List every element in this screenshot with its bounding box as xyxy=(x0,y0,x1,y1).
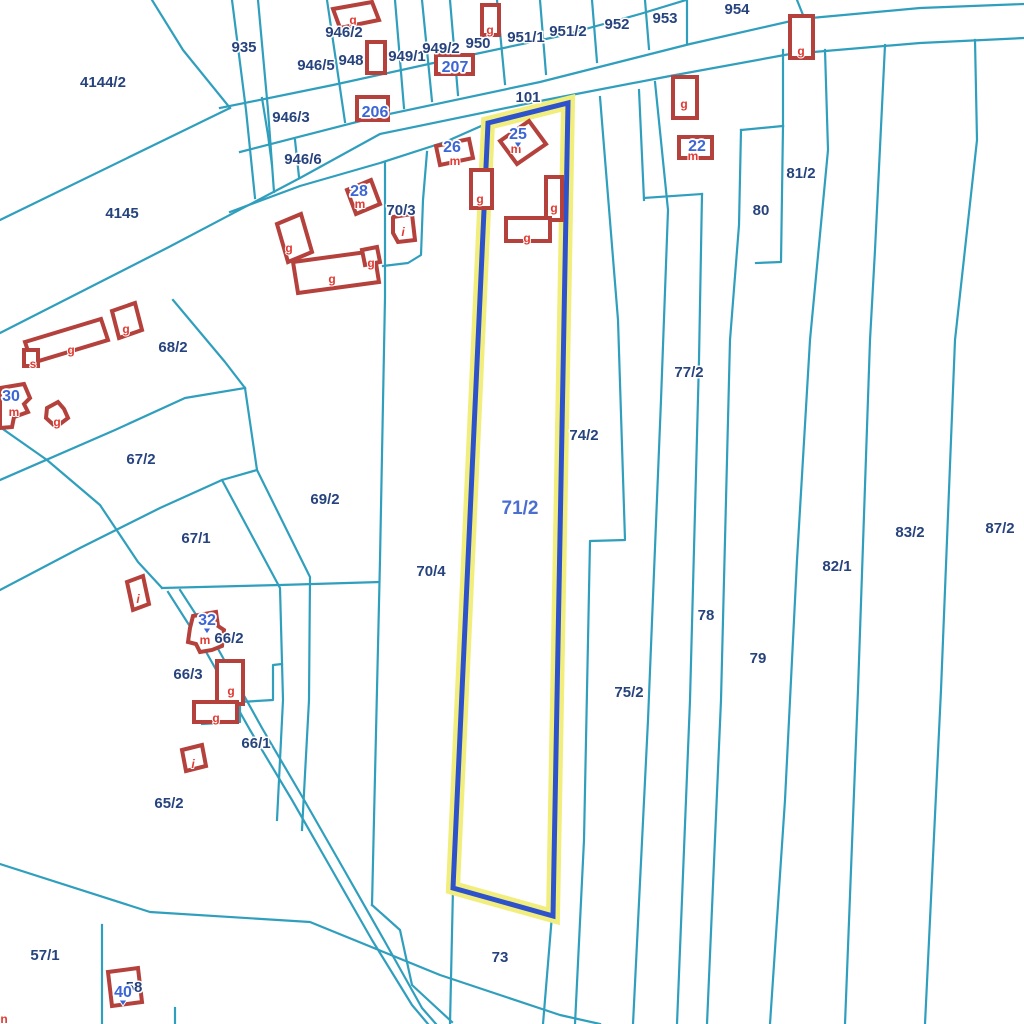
address-marker: 28 xyxy=(350,183,368,200)
building-letter: n xyxy=(0,1012,7,1024)
boundary-line xyxy=(741,126,783,130)
parcel-number-label: 948 xyxy=(338,52,363,69)
building-letter: s xyxy=(30,357,37,371)
parcel-number-label: 66/1 xyxy=(241,735,270,752)
parcel-number-label: 70/4 xyxy=(416,563,446,580)
building-letter: g xyxy=(67,343,74,357)
parcel-number-label: 935 xyxy=(231,39,256,56)
parcel-number-label: 946/5 xyxy=(297,57,335,74)
parcel-number-label: 954 xyxy=(724,1,750,18)
parcel-number-label: 70/3 xyxy=(386,202,415,219)
parcel-number-label: 946/6 xyxy=(284,151,322,168)
boundary-line xyxy=(644,194,702,198)
parcel-number-label: 4144/2 xyxy=(80,74,126,91)
cadastral-map-canvas[interactable]: ggggmmgggmiggggsgmgmmggiin 9354144/2946/… xyxy=(0,0,1024,1024)
address-marker: 206 xyxy=(362,104,389,121)
parcel-number-label: 950 xyxy=(465,35,490,52)
building-letter: g xyxy=(285,241,292,255)
building-letter: g xyxy=(367,256,374,270)
parcel-number-label: 75/2 xyxy=(614,684,643,701)
parcel-number-label: 83/2 xyxy=(895,524,924,541)
building-outline xyxy=(277,214,312,262)
boundary-line xyxy=(0,864,600,1024)
boundary-line xyxy=(0,108,230,220)
parcel-number-label: 65/2 xyxy=(154,795,183,812)
boundary-line xyxy=(575,97,625,1024)
address-marker: 22 xyxy=(688,138,706,155)
address-marker: 30 xyxy=(2,388,20,405)
boundary-line xyxy=(257,470,310,830)
building-letter: g xyxy=(550,201,557,215)
parcel-number-label: 57/1 xyxy=(30,947,59,964)
address-marker: 25 xyxy=(509,126,527,143)
boundary-line xyxy=(450,888,453,1024)
road-south-edge xyxy=(0,38,1024,333)
building-letter: g xyxy=(523,231,530,245)
parcel-number-label: 949/2 xyxy=(422,40,460,57)
building-letter: g xyxy=(328,272,335,286)
parcel-number-label: 67/1 xyxy=(181,530,210,547)
parcel-number-label: 952 xyxy=(604,16,629,33)
address-marker: 26 xyxy=(443,139,461,156)
building-letter: m xyxy=(200,633,211,647)
boundary-line xyxy=(152,0,230,108)
boundary-line xyxy=(925,40,977,1024)
parcel-number-label: 79 xyxy=(750,650,767,667)
boundary-line xyxy=(232,0,255,198)
boundary-line xyxy=(592,0,597,62)
parcel-number-label: 949/1 xyxy=(388,48,426,65)
boundary-line xyxy=(770,50,828,1024)
boundary-line xyxy=(0,388,245,480)
boundary-line xyxy=(797,0,803,15)
boundary-line xyxy=(543,915,552,1024)
path-edge xyxy=(168,592,428,1024)
boundary-line xyxy=(639,90,644,200)
parcel-number-label: 946/3 xyxy=(272,109,310,126)
parcel-number-label: 101 xyxy=(515,89,540,106)
boundary-line xyxy=(0,470,257,590)
address-marker: 207 xyxy=(442,59,469,76)
building-letter: g xyxy=(122,322,129,336)
selected-parcel-label: 71/2 xyxy=(502,498,539,519)
cadastral-map-viewport[interactable]: ggggmmgggmiggggsgmgmmggiin 9354144/2946/… xyxy=(0,0,1024,1024)
boundary-line xyxy=(245,388,257,470)
address-marker: 32 xyxy=(198,612,216,629)
address-marker: 40 xyxy=(114,984,132,1001)
building-letter: g xyxy=(476,192,483,206)
parcel-number-label: 87/2 xyxy=(985,520,1014,537)
boundary-line xyxy=(845,45,885,1024)
building-letter: g xyxy=(680,97,687,111)
boundary-line xyxy=(633,82,668,1024)
parcel-number-label: 951/1 xyxy=(507,29,545,46)
building-letter: m xyxy=(9,405,20,419)
parcel-number-label: 951/2 xyxy=(549,23,587,40)
parcel-number-label: 73 xyxy=(492,949,509,966)
building-letter: g xyxy=(797,44,804,58)
parcel-number-label: 81/2 xyxy=(786,165,815,182)
parcel-number-label: 80 xyxy=(753,202,770,219)
parcel-number-label: 69/2 xyxy=(310,491,339,508)
building-letter: m xyxy=(450,154,461,168)
parcel-number-label: 74/2 xyxy=(569,427,598,444)
parcel-number-label: 78 xyxy=(698,607,715,624)
parcel-number-label: 4145 xyxy=(105,205,138,222)
parcel-number-label: 77/2 xyxy=(674,364,703,381)
parcel-number-label: 67/2 xyxy=(126,451,155,468)
boundary-line xyxy=(162,582,379,588)
building-letter: g xyxy=(53,415,60,429)
parcel-number-label: 946/2 xyxy=(325,24,363,41)
parcel-number-label: 66/3 xyxy=(173,666,202,683)
parcel-number-label: 66/2 xyxy=(214,630,243,647)
building-outline xyxy=(367,42,385,73)
parcel-number-label: 82/1 xyxy=(822,558,851,575)
boundary-line xyxy=(645,0,649,49)
parcel-number-label: 68/2 xyxy=(158,339,187,356)
boundary-line xyxy=(707,130,741,1024)
building-letter: g xyxy=(212,711,219,725)
building-letter: g xyxy=(227,684,234,698)
boundary-line xyxy=(756,126,783,263)
parcel-number-label: 953 xyxy=(652,10,677,27)
